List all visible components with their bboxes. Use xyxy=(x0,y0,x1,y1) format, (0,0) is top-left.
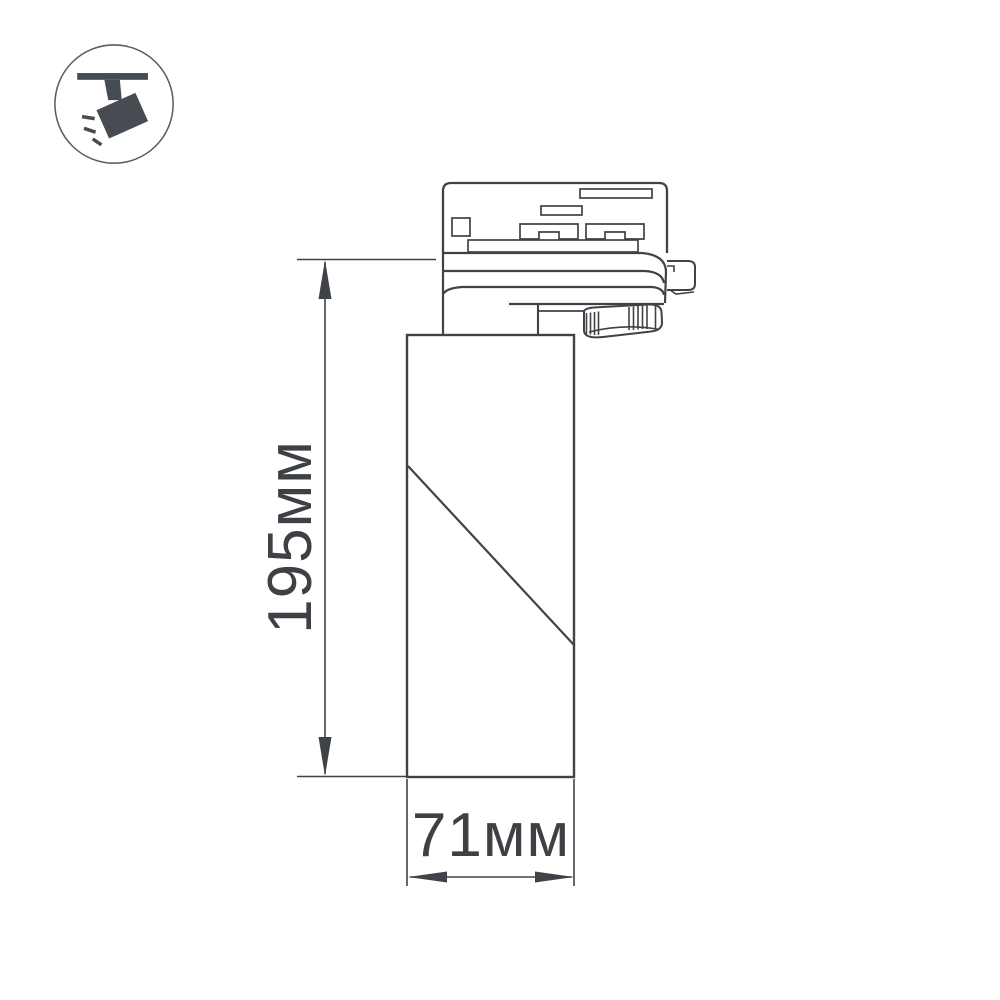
body-cylinder xyxy=(407,335,574,777)
arrow-left-icon xyxy=(408,872,447,883)
arrow-right-icon xyxy=(535,872,574,883)
adapter-contacts xyxy=(452,189,652,252)
product-dimension-drawing: 195мм 71мм xyxy=(0,0,1000,1000)
adapter-collar xyxy=(443,253,666,335)
arrow-up-icon xyxy=(319,260,332,299)
width-dimension-label: 71мм xyxy=(412,805,570,867)
bevel-line xyxy=(408,466,574,645)
track-adapter-head xyxy=(443,183,667,253)
height-dimension-label: 195мм xyxy=(260,440,322,634)
latch-tab xyxy=(667,261,695,294)
arrow-down-icon xyxy=(319,737,332,776)
locking-knob xyxy=(584,304,662,337)
adapter-neck xyxy=(538,304,584,335)
